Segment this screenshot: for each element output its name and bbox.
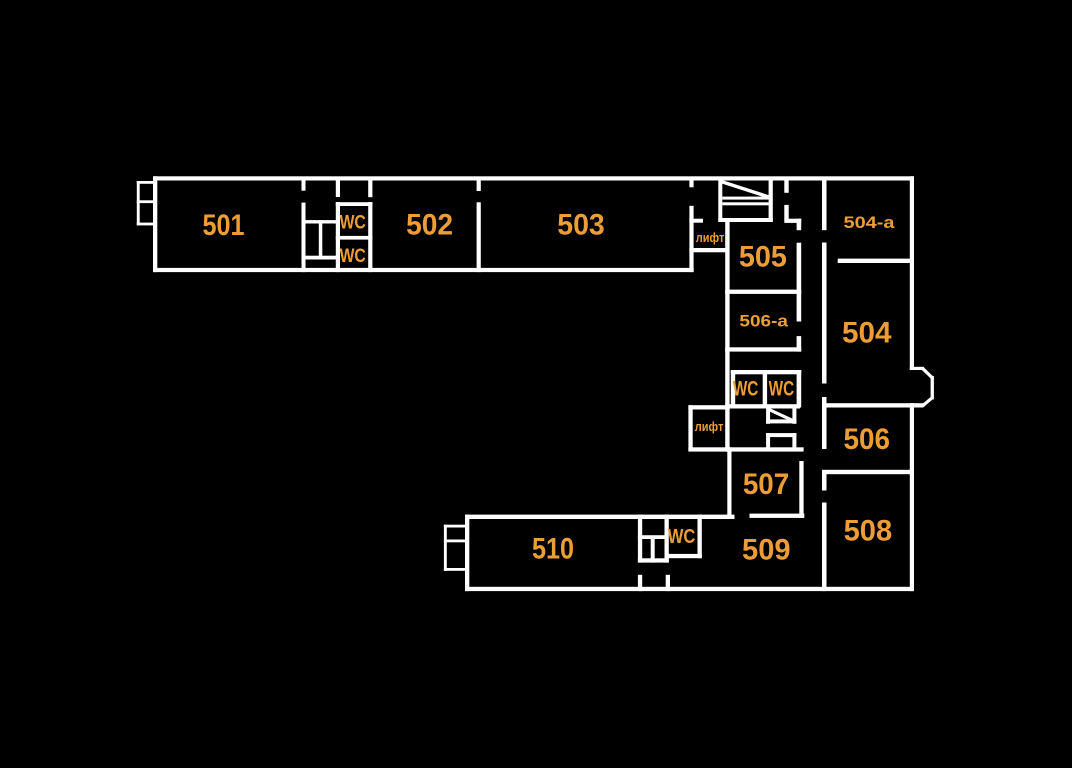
svg-text:WC: WC bbox=[769, 378, 795, 401]
svg-text:505: 505 bbox=[739, 241, 787, 274]
svg-text:506: 506 bbox=[844, 423, 891, 456]
svg-text:504-а: 504-а bbox=[844, 214, 896, 232]
svg-text:502: 502 bbox=[406, 209, 453, 242]
svg-text:504: 504 bbox=[842, 317, 892, 350]
svg-text:WC: WC bbox=[340, 245, 366, 267]
svg-text:лифт: лифт bbox=[695, 419, 724, 434]
svg-text:506-а: 506-а bbox=[739, 313, 789, 331]
svg-text:503: 503 bbox=[557, 209, 605, 242]
svg-text:WC: WC bbox=[668, 526, 696, 548]
svg-text:507: 507 bbox=[743, 468, 789, 501]
svg-text:509: 509 bbox=[742, 533, 791, 566]
svg-text:лифт: лифт bbox=[696, 230, 725, 245]
svg-text:508: 508 bbox=[844, 515, 893, 548]
svg-text:WC: WC bbox=[733, 378, 759, 401]
svg-text:WC: WC bbox=[340, 212, 366, 234]
svg-text:510: 510 bbox=[532, 533, 574, 566]
svg-text:501: 501 bbox=[203, 209, 245, 242]
